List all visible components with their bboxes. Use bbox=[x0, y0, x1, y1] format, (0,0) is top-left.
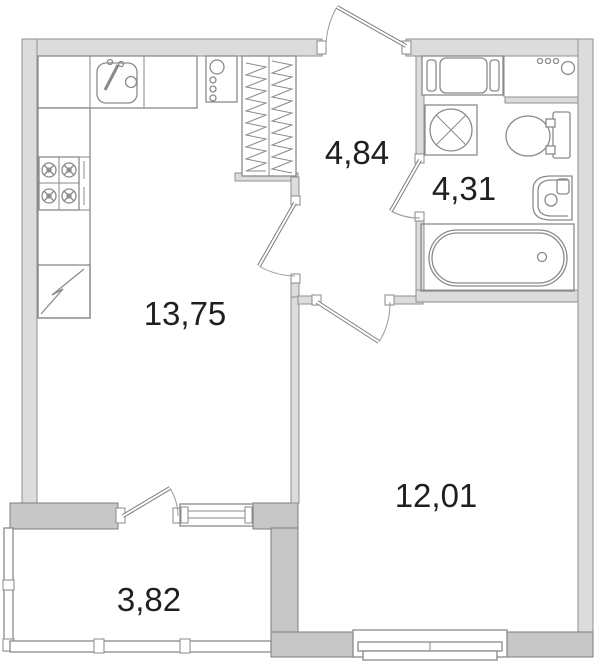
window-balcony-bottom-icon bbox=[10, 639, 271, 653]
kitchen-sink-icon bbox=[97, 60, 137, 104]
room-label-bedroom: 12,01 bbox=[395, 477, 478, 514]
room-label-kitchen-living: 13,75 bbox=[144, 295, 227, 332]
window-bedroom-icon bbox=[353, 630, 507, 660]
floor-plan: 13,75 4,84 4,31 12,01 3,82 bbox=[0, 0, 600, 661]
window-balcony-left-icon bbox=[3, 528, 14, 651]
room-label-balcony: 3,82 bbox=[117, 581, 181, 618]
floor-plan-canvas: 13,75 4,84 4,31 12,01 3,82 bbox=[0, 0, 600, 661]
window-living-balcony-icon bbox=[180, 504, 253, 526]
bathroom-door-icon bbox=[391, 154, 424, 221]
balcony-door-icon bbox=[116, 488, 182, 523]
bathtub-icon bbox=[421, 224, 574, 291]
bathroom-sink-icon bbox=[533, 176, 572, 220]
kitchen-counter-left bbox=[38, 108, 90, 318]
bathroom-counter-icon bbox=[504, 56, 578, 103]
room-label-bathroom: 4,31 bbox=[432, 170, 496, 207]
toilet-icon bbox=[506, 112, 570, 158]
room-labels: 13,75 4,84 4,31 12,01 3,82 bbox=[117, 134, 496, 618]
bedroom-door-icon bbox=[312, 295, 394, 342]
kitchen-door-icon bbox=[259, 196, 300, 283]
wardrobe-icon bbox=[242, 56, 296, 176]
bathroom-cabinet-icon bbox=[422, 56, 503, 95]
room-label-hallway: 4,84 bbox=[325, 134, 389, 171]
washing-machine-icon bbox=[425, 105, 477, 155]
entrance-door-icon bbox=[317, 7, 411, 54]
boiler-icon bbox=[206, 56, 237, 102]
